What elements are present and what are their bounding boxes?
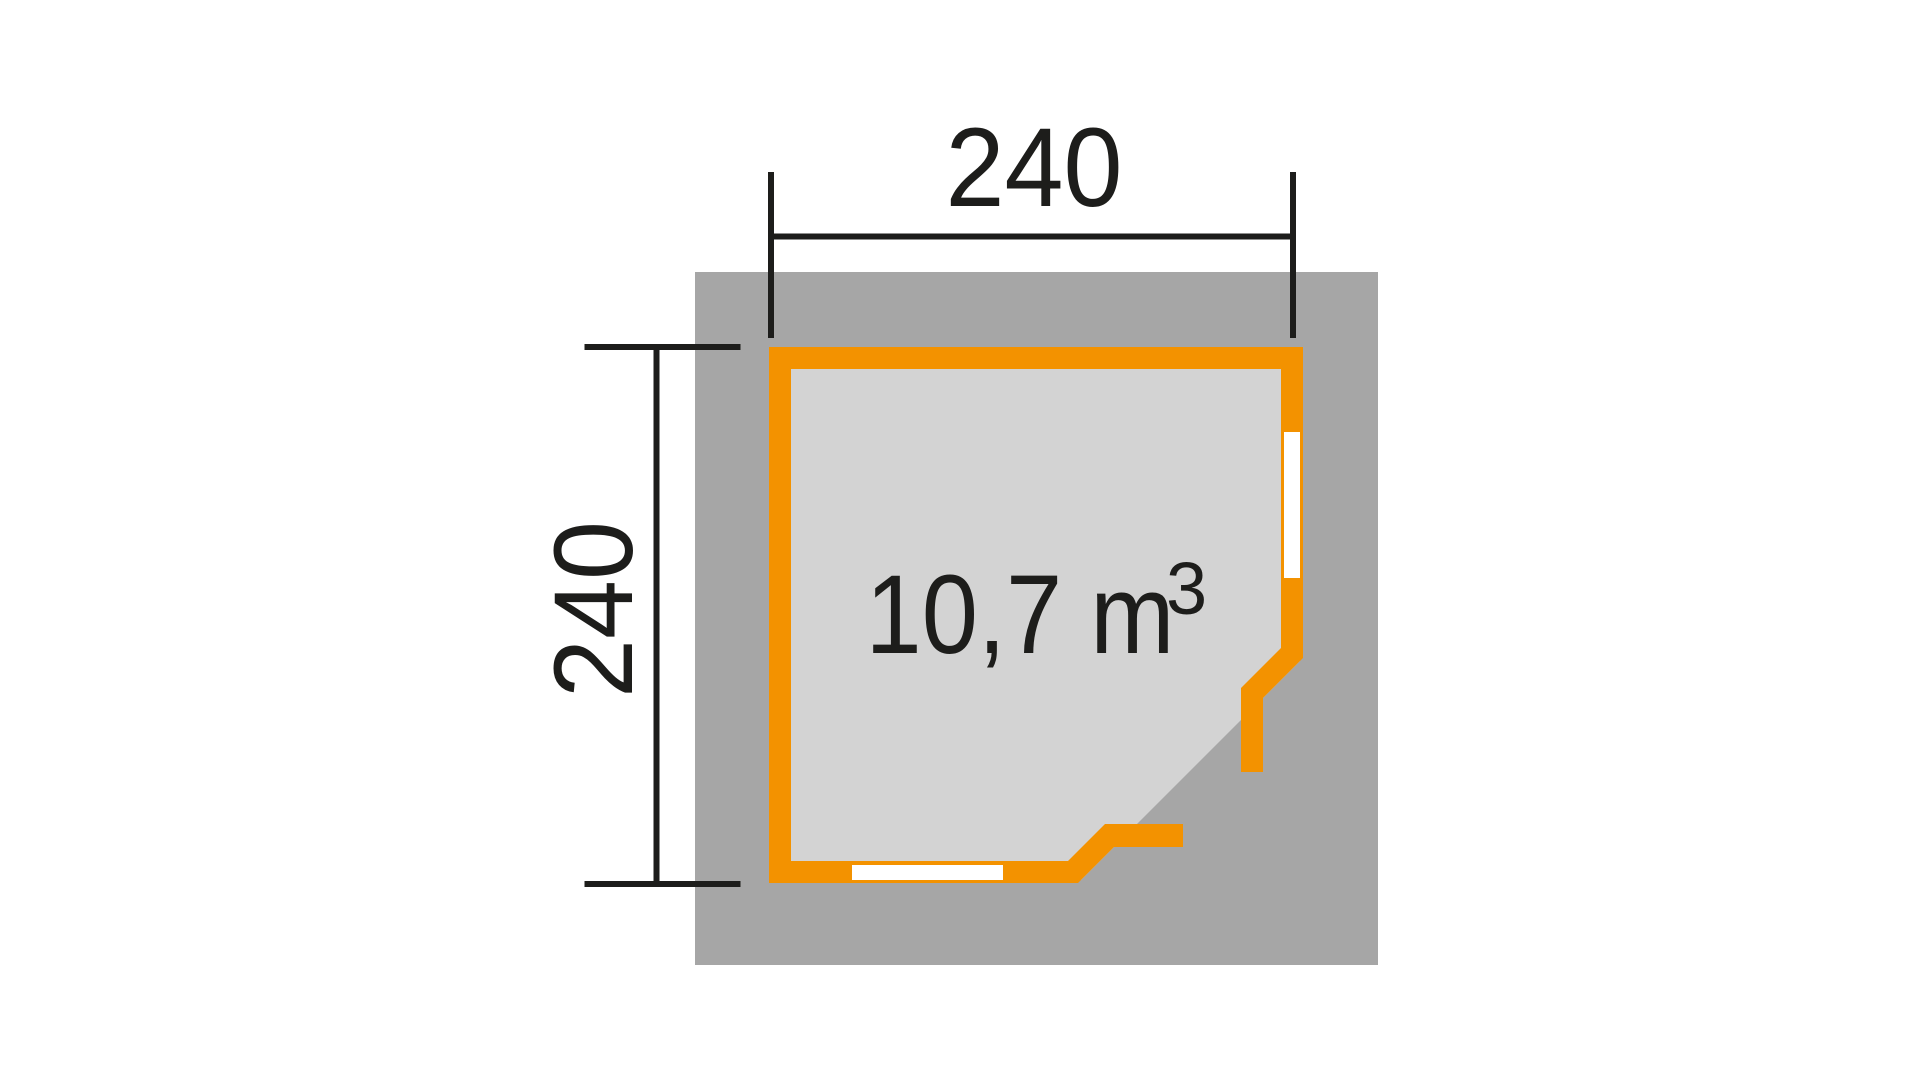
svg-text:240: 240: [531, 521, 656, 698]
svg-text:3: 3: [1166, 547, 1207, 630]
svg-text:240: 240: [946, 105, 1123, 230]
svg-text:10,7 m: 10,7 m: [866, 552, 1175, 677]
